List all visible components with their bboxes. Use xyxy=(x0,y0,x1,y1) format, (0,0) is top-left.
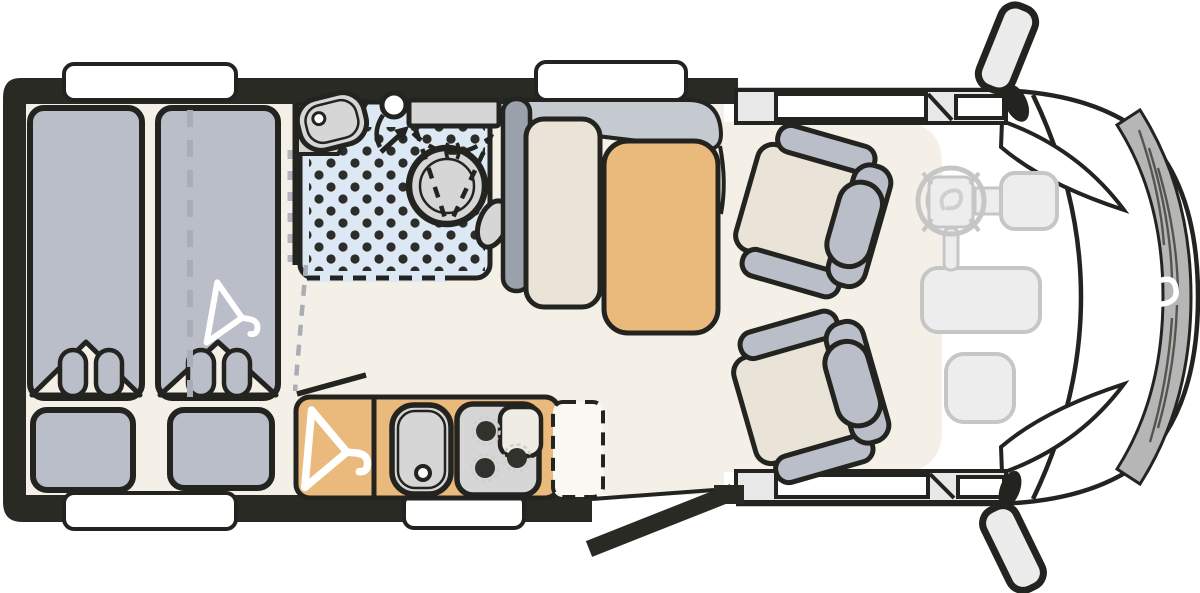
mirror-glass xyxy=(978,501,1049,593)
shower-head-icon xyxy=(382,93,406,117)
mirror-glass xyxy=(974,0,1040,95)
center-console xyxy=(922,268,1040,332)
window-dinette-top xyxy=(536,62,686,100)
bench-seat xyxy=(526,119,600,307)
dashboard-tray xyxy=(946,354,1014,422)
floorplan-page: { "meta": { "image_type": "motorhome-flo… xyxy=(0,0,1200,593)
toilet-cistern xyxy=(409,100,499,126)
sink-drain xyxy=(416,466,430,480)
steering-hub xyxy=(929,177,973,227)
pillow-left xyxy=(33,410,133,490)
faucet xyxy=(312,111,327,126)
airbag-pad xyxy=(1001,173,1057,229)
kitchen xyxy=(296,397,603,498)
cab-front-window-top xyxy=(956,96,1004,118)
floorplan-canvas xyxy=(0,0,1200,593)
pillow-right xyxy=(170,410,272,488)
window-bedroom-top xyxy=(64,64,236,100)
optional-unit-dashed-outline xyxy=(553,402,603,497)
dinette-table xyxy=(604,141,718,333)
dinette xyxy=(503,99,724,333)
cab-door-window-top xyxy=(776,94,926,119)
window-bedroom-bottom xyxy=(64,493,236,529)
cab-front-window-bottom xyxy=(958,477,1004,497)
entry-door-open xyxy=(589,492,733,549)
steering-column xyxy=(975,188,1003,214)
